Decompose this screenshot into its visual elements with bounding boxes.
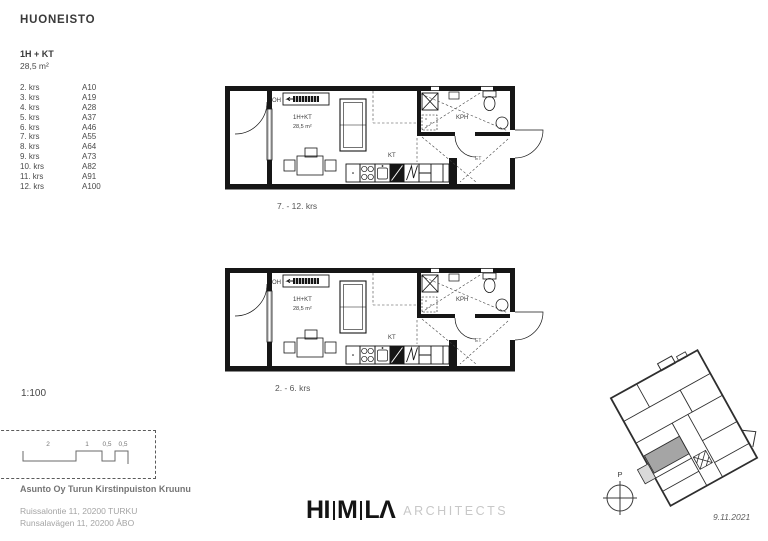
list-item: 10. krsA82 (20, 162, 150, 172)
unit-label: A91 (82, 172, 96, 182)
floor-label: 8. krs (20, 142, 82, 152)
unit-label: A73 (82, 152, 96, 162)
floor-label: 6. krs (20, 123, 82, 133)
floor-label: 5. krs (20, 113, 82, 123)
north-arrow-icon: P (603, 470, 637, 515)
apartment-area: 28,5 m² (20, 61, 49, 71)
scale-seg-label: 0,5 (118, 441, 127, 448)
floor-label: 3. krs (20, 93, 82, 103)
floor-label: 11. krs (20, 172, 82, 182)
list-item: 11. krsA91 (20, 172, 150, 182)
logo-bar-icon (333, 501, 335, 520)
key-plan: P (598, 336, 762, 534)
unit-label: A19 (82, 93, 96, 103)
address-line-sv: Runsalavägen 11, 20200 ÅBO (20, 518, 134, 528)
unit-label: A37 (82, 113, 96, 123)
unit-label: A82 (82, 162, 96, 172)
scale-bar-box: 2 1 0,5 0,5 (0, 430, 156, 479)
unit-label: A46 (82, 123, 96, 133)
unit-label: A55 (82, 132, 96, 142)
list-item: 2. krsA10 (20, 83, 150, 93)
list-item: 6. krsA46 (20, 123, 150, 133)
floor-unit-list: 2. krsA10 3. krsA19 4. krsA28 5. krsA37 … (20, 83, 150, 192)
plan-caption-lower: 2. - 6. krs (275, 383, 310, 393)
floor-label: 4. krs (20, 103, 82, 113)
list-item: 3. krsA19 (20, 93, 150, 103)
north-label: P (617, 470, 622, 479)
unit-label: A64 (82, 142, 96, 152)
apartment-type: 1H + KT (20, 49, 54, 59)
logo-word-part: LΛ (364, 498, 395, 523)
unit-label: A10 (82, 83, 96, 93)
logo-word-part: M (337, 498, 357, 523)
scale-seg-label: 1 (85, 441, 89, 448)
list-item: 4. krsA28 (20, 103, 150, 113)
floor-label: 12. krs (20, 182, 82, 192)
scale-seg-label: 2 (46, 441, 50, 448)
logo-bar-icon (360, 501, 362, 520)
scale-seg-label: 0,5 (102, 441, 111, 448)
address-line-fi: Ruissalontie 11, 20200 TURKU (20, 506, 137, 516)
logo-word-part: HI (306, 498, 330, 523)
logo-suffix: ARCHITECTS (403, 504, 508, 518)
floor-label: 10. krs (20, 162, 82, 172)
list-item: 7. krsA55 (20, 132, 150, 142)
list-item: 5. krsA37 (20, 113, 150, 123)
project-name: Asunto Oy Turun Kirstinpuiston Kruunu (20, 484, 191, 494)
list-item: 9. krsA73 (20, 152, 150, 162)
drawing-date: 9.11.2021 (713, 512, 750, 522)
unit-label: A100 (82, 182, 101, 192)
floor-plan-upper (225, 86, 547, 190)
scale-bar: 2 1 0,5 0,5 (0, 431, 153, 475)
building-outline (611, 350, 757, 506)
floor-label: 9. krs (20, 152, 82, 162)
plan-caption-upper: 7. - 12. krs (277, 201, 317, 211)
list-item: 12. krsA100 (20, 182, 150, 192)
unit-label: A28 (82, 103, 96, 113)
drawing-sheet: OH 1H+KT 28,5 m² KT KPH ET HUONEISTO 1H … (0, 0, 768, 541)
floor-plan-lower (225, 268, 547, 372)
floor-label: 2. krs (20, 83, 82, 93)
page-title: HUONEISTO (20, 14, 95, 26)
floor-label: 7. krs (20, 132, 82, 142)
scale-ratio: 1:100 (21, 388, 46, 399)
list-item: 8. krsA64 (20, 142, 150, 152)
himla-architects-logo: HI M LΛ ARCHITECTS (306, 495, 508, 525)
